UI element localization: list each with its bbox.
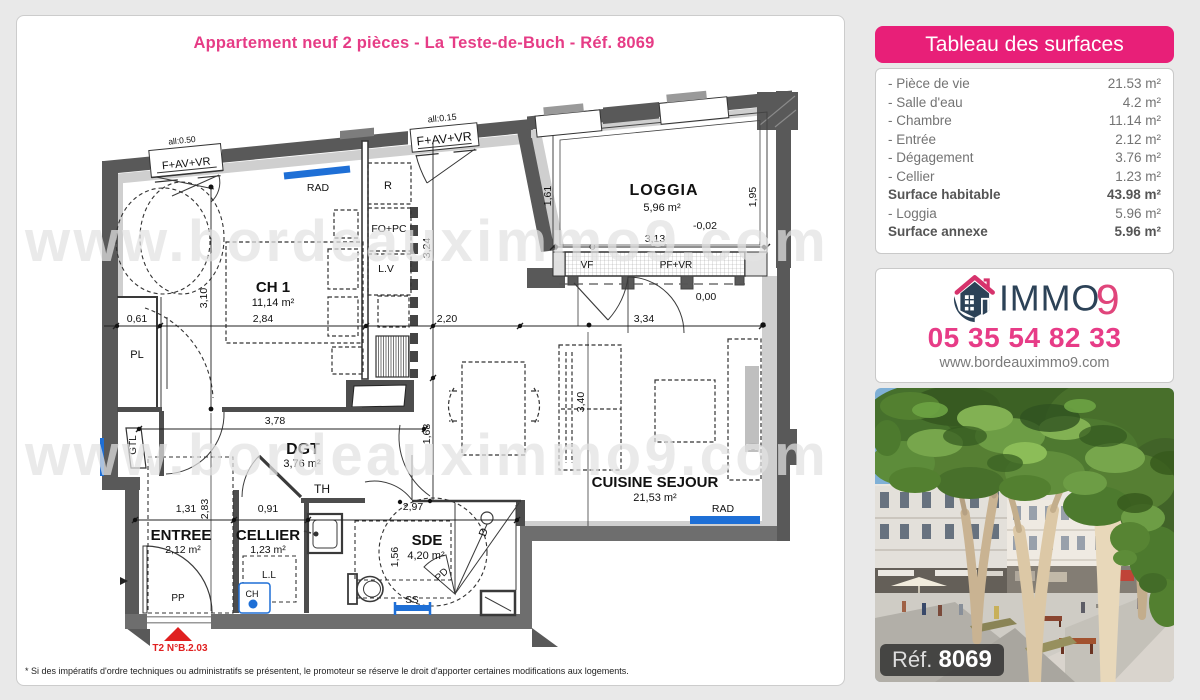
- svg-text:4,20 m²: 4,20 m²: [407, 550, 445, 562]
- svg-text:R: R: [384, 180, 392, 192]
- svg-text:CH: CH: [246, 589, 259, 599]
- svg-text:LOGGIA: LOGGIA: [629, 182, 698, 199]
- svg-text:21,53 m²: 21,53 m²: [633, 492, 677, 504]
- svg-text:all:0.50: all:0.50: [168, 134, 197, 147]
- svg-text:T2 N°B.2.03: T2 N°B.2.03: [152, 643, 208, 654]
- svg-text:CH 1: CH 1: [256, 279, 290, 296]
- svg-text:2,83: 2,83: [199, 499, 211, 520]
- svg-text:PP: PP: [171, 593, 185, 604]
- svg-text:0,00: 0,00: [696, 291, 717, 303]
- svg-text:IMMO: IMMO: [999, 278, 1100, 318]
- svg-text:all:0.15: all:0.15: [427, 112, 457, 125]
- svg-text:RAD: RAD: [307, 182, 330, 194]
- svg-text:1,31: 1,31: [176, 503, 197, 515]
- svg-text:1,61: 1,61: [542, 186, 554, 207]
- svg-text:2,12 m²: 2,12 m²: [165, 544, 201, 556]
- svg-text:SS: SS: [405, 595, 419, 606]
- svg-text:3,34: 3,34: [634, 313, 655, 325]
- svg-text:SDE: SDE: [412, 532, 443, 549]
- svg-text:PL: PL: [130, 349, 143, 361]
- svg-text:1,23 m²: 1,23 m²: [250, 544, 286, 556]
- svg-text:L.L: L.L: [262, 570, 276, 581]
- svg-text:2,20: 2,20: [437, 313, 458, 325]
- svg-text:CELLIER: CELLIER: [236, 527, 300, 544]
- svg-text:11,14 m²: 11,14 m²: [252, 297, 295, 309]
- svg-text:ENTREE: ENTREE: [151, 527, 212, 544]
- svg-text:9: 9: [1096, 276, 1120, 323]
- svg-text:3,10: 3,10: [198, 288, 210, 309]
- svg-text:3,40: 3,40: [575, 392, 587, 413]
- svg-text:RAD: RAD: [712, 503, 735, 515]
- svg-text:2,84: 2,84: [253, 313, 274, 325]
- svg-text:2,97: 2,97: [403, 501, 424, 513]
- svg-text:1,95: 1,95: [747, 187, 759, 208]
- svg-text:0,61: 0,61: [127, 313, 148, 325]
- svg-text:1,56: 1,56: [389, 547, 401, 568]
- svg-text:0,91: 0,91: [258, 503, 279, 515]
- svg-text:D: D: [477, 527, 491, 539]
